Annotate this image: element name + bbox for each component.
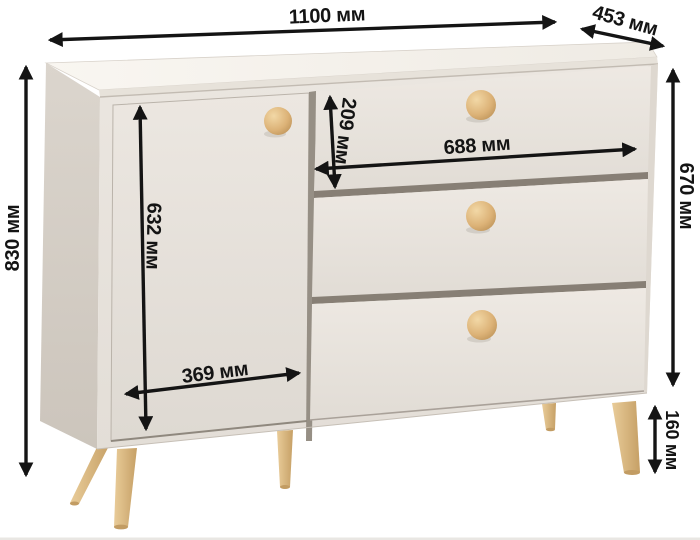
dresser-illustration xyxy=(0,0,700,540)
leg-back-right-foot xyxy=(546,428,555,432)
leg-back-left-foot xyxy=(70,502,79,506)
leg-front-left-foot xyxy=(114,525,128,530)
dimension-label-door-height: 632 мм xyxy=(142,202,163,269)
drawer-2 xyxy=(312,179,648,297)
door-knob xyxy=(264,107,292,135)
leg-back-middle-foot xyxy=(280,485,290,489)
drawer-3-knob xyxy=(467,310,497,340)
dimension-label-overall-height: 830 мм xyxy=(3,205,23,272)
furniture-dimension-diagram: 1100 мм 453 мм 830 мм 632 мм 209 мм 688 … xyxy=(0,0,700,540)
side-panel xyxy=(40,63,100,449)
dimension-label-carcass-height: 670 мм xyxy=(676,163,696,230)
leg-back-right xyxy=(542,403,556,430)
leg-front-right xyxy=(612,401,640,473)
drawer-2-knob xyxy=(466,201,496,231)
drawer-1-knob xyxy=(466,90,496,120)
dimension-label-leg-height: 160 мм xyxy=(663,410,681,470)
leg-back-left xyxy=(70,442,111,504)
leg-back-middle xyxy=(277,430,293,487)
dimension-label-overall-width: 1100 мм xyxy=(288,4,365,27)
dimension-label-drawer-width: 688 мм xyxy=(443,134,511,159)
leg-front-right-foot xyxy=(624,470,640,475)
drawer-3 xyxy=(310,288,646,420)
leg-front-left xyxy=(114,448,137,527)
